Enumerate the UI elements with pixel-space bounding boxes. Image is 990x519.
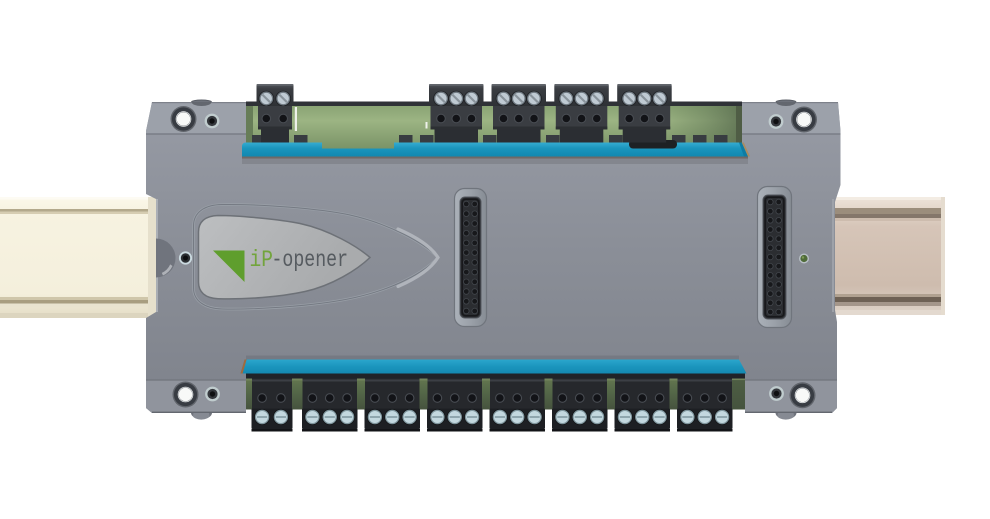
svg-text:iP: iP xyxy=(250,247,274,273)
svg-text:-opener: -opener xyxy=(272,247,349,273)
